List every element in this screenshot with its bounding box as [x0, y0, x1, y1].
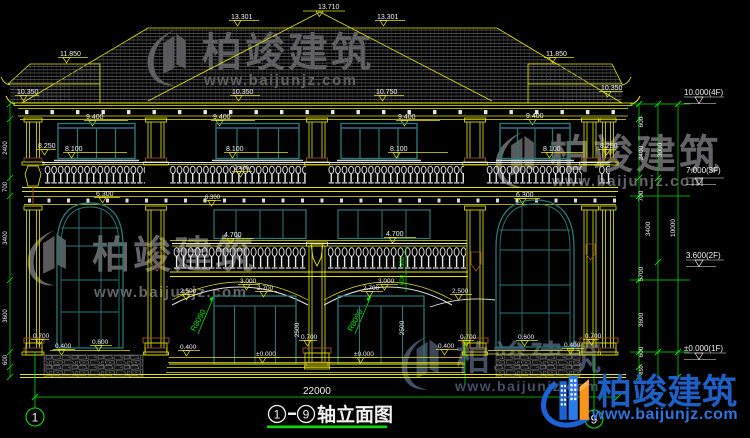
svg-text:4.700: 4.700 — [386, 231, 404, 238]
svg-text:9.400: 9.400 — [213, 114, 231, 121]
svg-text:600: 600 — [638, 116, 645, 127]
svg-text:11.850: 11.850 — [60, 51, 81, 58]
svg-text:600: 600 — [3, 354, 9, 365]
svg-text:600: 600 — [638, 346, 645, 357]
svg-text:6.300: 6.300 — [516, 192, 534, 199]
svg-text:0.600: 0.600 — [518, 334, 535, 341]
svg-text:2500: 2500 — [294, 322, 301, 337]
svg-text:13.301: 13.301 — [377, 14, 399, 21]
svg-text:3600: 3600 — [638, 312, 645, 327]
svg-text:7.000(3F): 7.000(3F) — [686, 166, 721, 175]
svg-text:2.500: 2.500 — [180, 288, 197, 295]
svg-text:www.baijunjz.com: www.baijunjz.com — [591, 406, 738, 423]
svg-text:9.400: 9.400 — [398, 114, 416, 121]
svg-text:3.000: 3.000 — [240, 278, 257, 285]
svg-text:0.400: 0.400 — [55, 343, 72, 350]
svg-text:10.350: 10.350 — [232, 89, 254, 96]
svg-text:600: 600 — [400, 274, 406, 285]
svg-text:0.700: 0.700 — [585, 333, 602, 340]
svg-text:8.250: 8.250 — [38, 143, 56, 150]
svg-text:500: 500 — [400, 256, 406, 267]
svg-text:11.850: 11.850 — [546, 51, 567, 58]
svg-text:7.400: 7.400 — [234, 166, 250, 172]
svg-text:2.700: 2.700 — [363, 285, 380, 292]
svg-text:3400: 3400 — [645, 221, 652, 236]
svg-text:±0.000(1F): ±0.000(1F) — [684, 344, 723, 353]
svg-text:3000: 3000 — [657, 142, 664, 157]
svg-text:0.400: 0.400 — [180, 344, 197, 351]
svg-text:1: 1 — [274, 408, 281, 422]
svg-text:9: 9 — [303, 408, 310, 422]
svg-text:www.baijunjz.com: www.baijunjz.com — [454, 378, 600, 394]
svg-text:3.000: 3.000 — [378, 278, 395, 285]
svg-text:0.700: 0.700 — [301, 334, 318, 341]
svg-text:2.700: 2.700 — [257, 285, 274, 292]
svg-text:8.100: 8.100 — [543, 146, 561, 153]
svg-text:3400: 3400 — [3, 231, 9, 245]
svg-text:5700: 5700 — [638, 266, 645, 281]
svg-text:2500: 2500 — [399, 320, 406, 335]
svg-text:0.700: 0.700 — [460, 334, 477, 341]
svg-text:700: 700 — [3, 181, 9, 192]
svg-text:4.700: 4.700 — [224, 232, 242, 239]
svg-text:8.100: 8.100 — [226, 146, 244, 153]
svg-text:0.600: 0.600 — [92, 339, 109, 346]
svg-text:±0.000: ±0.000 — [354, 351, 374, 358]
svg-text:22000: 22000 — [303, 386, 331, 397]
svg-text:10000: 10000 — [670, 219, 677, 237]
svg-text:0.700: 0.700 — [33, 333, 50, 340]
svg-text:www.baijunjz.com: www.baijunjz.com — [93, 284, 247, 301]
svg-text:3.600(2F): 3.600(2F) — [686, 251, 721, 260]
svg-text:±0.000: ±0.000 — [256, 351, 276, 358]
svg-text:6.300: 6.300 — [205, 195, 221, 201]
svg-text:轴立面图: 轴立面图 — [317, 403, 393, 426]
svg-text:10.350: 10.350 — [601, 85, 623, 92]
svg-text:8.100: 8.100 — [390, 146, 408, 153]
svg-text:9.400: 9.400 — [526, 113, 544, 120]
svg-text:0.400: 0.400 — [564, 342, 581, 349]
svg-text:8.100: 8.100 — [65, 146, 83, 153]
svg-text:0.400: 0.400 — [438, 343, 455, 350]
svg-text:8.250: 8.250 — [600, 143, 618, 150]
svg-text:1: 1 — [32, 411, 39, 425]
svg-text:10.000(4F): 10.000(4F) — [684, 88, 723, 97]
svg-text:13.710: 13.710 — [318, 4, 340, 11]
svg-text:2400: 2400 — [638, 145, 645, 160]
svg-text:2.500: 2.500 — [452, 288, 469, 295]
svg-text:700: 700 — [638, 190, 645, 201]
svg-text:3600: 3600 — [3, 309, 9, 323]
svg-text:9.400: 9.400 — [86, 114, 104, 121]
svg-text:2400: 2400 — [3, 141, 9, 155]
svg-text:10.350: 10.350 — [17, 89, 39, 96]
svg-text:6.300: 6.300 — [96, 191, 114, 198]
svg-text:10.750: 10.750 — [376, 89, 398, 96]
svg-text:13.301: 13.301 — [231, 14, 253, 21]
